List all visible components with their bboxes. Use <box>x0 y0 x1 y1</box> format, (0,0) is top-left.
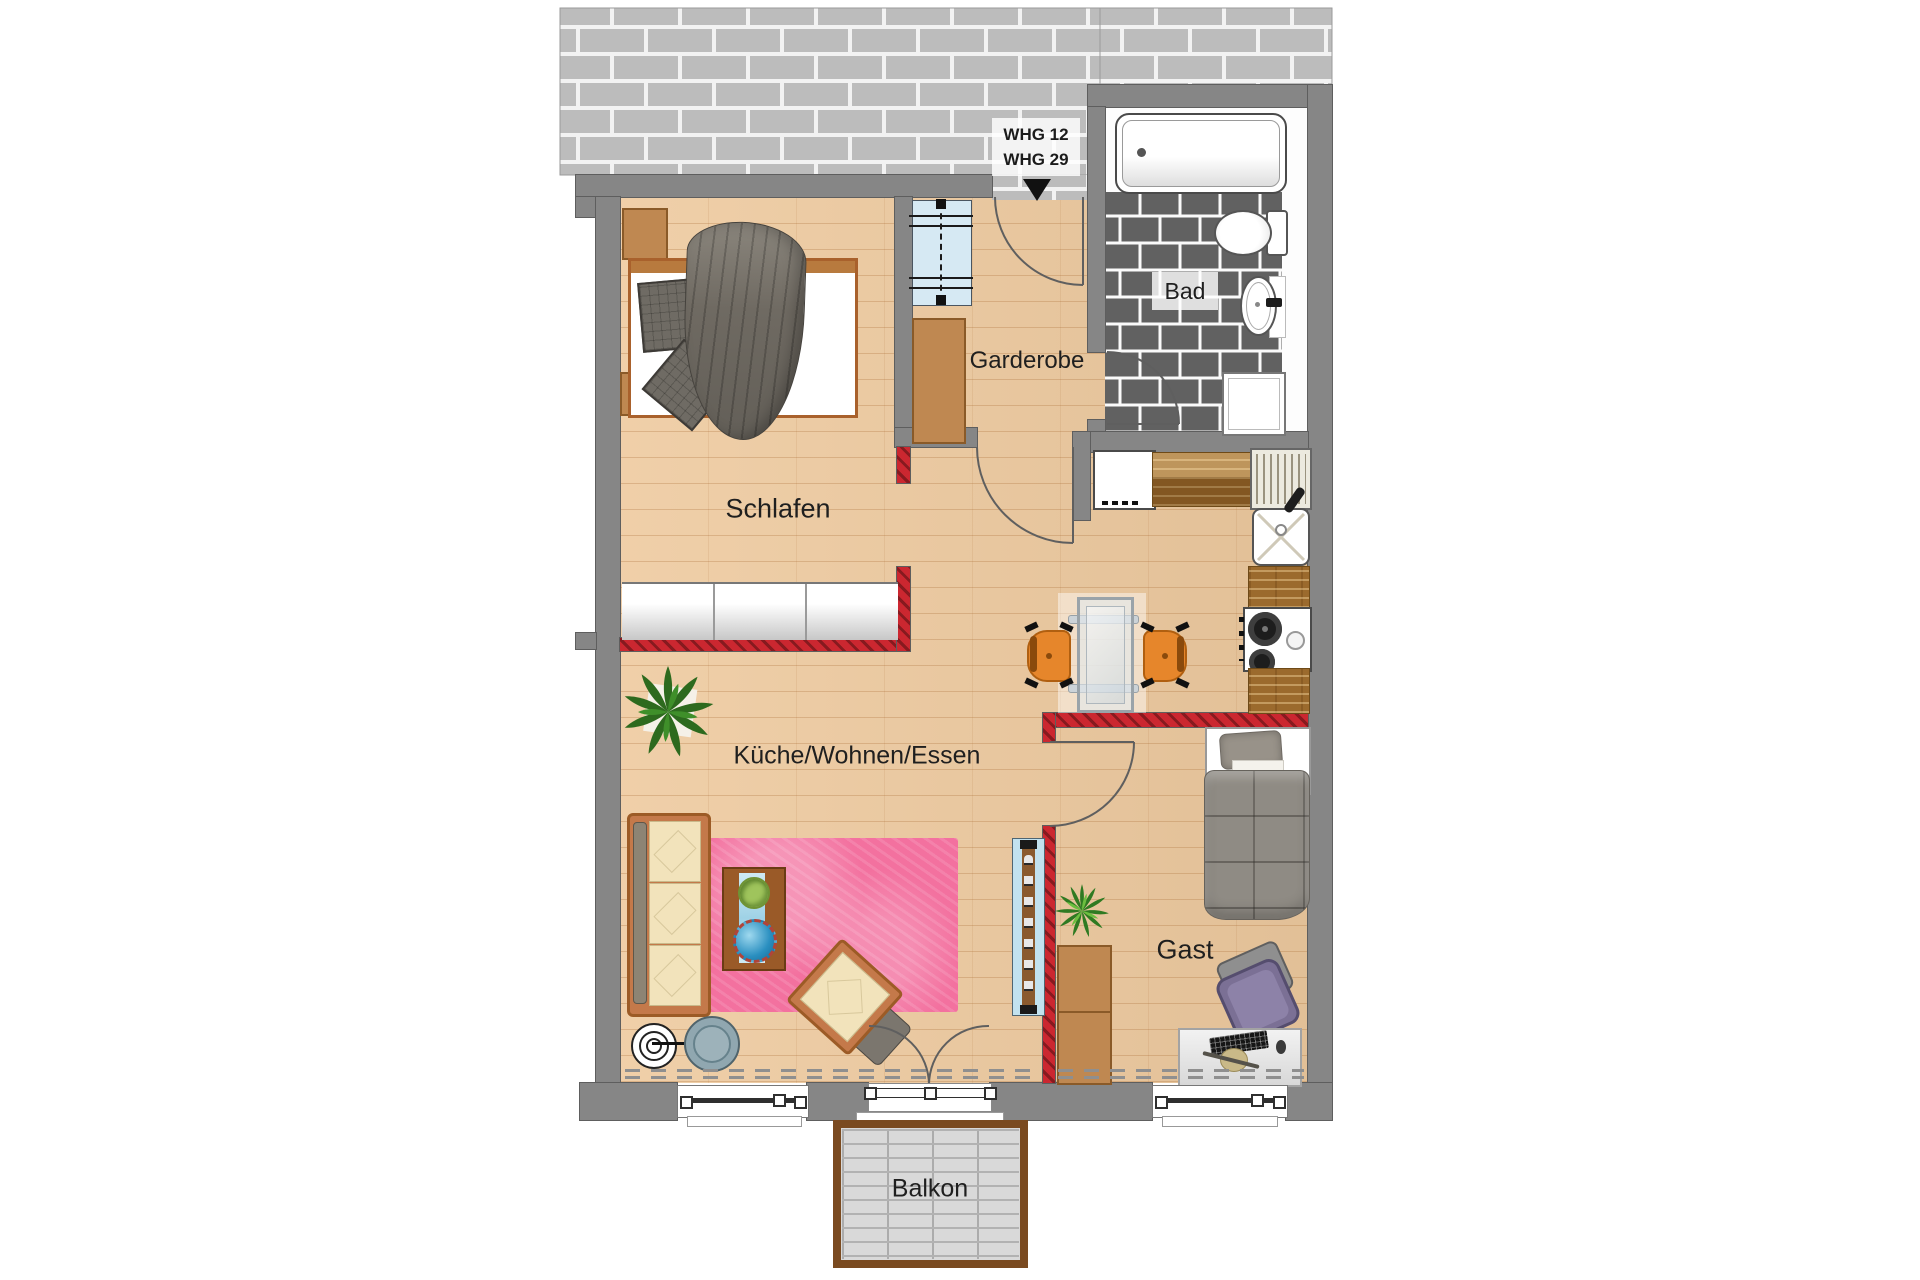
bedroom-label: Schlafen <box>725 494 830 525</box>
kitchen-wall-stub <box>1073 432 1090 520</box>
chair-dot <box>1162 653 1168 659</box>
dining-chair-right <box>1143 630 1187 682</box>
table-blue-sphere-icon <box>733 919 777 963</box>
heating-line <box>1058 1069 1304 1072</box>
stove-knobs <box>1239 617 1244 661</box>
window-guest <box>1152 1085 1288 1118</box>
bathtub-drain <box>1137 148 1146 157</box>
stove <box>1243 607 1312 672</box>
guest-wardrobe <box>1057 945 1112 1085</box>
balcony-door-leaf-left <box>870 1088 928 1098</box>
balcony-label: Balkon <box>892 1175 968 1204</box>
basin-cross-lines <box>1254 510 1308 564</box>
bedroom-nightstand <box>622 208 668 260</box>
bottom-wall-pier-left <box>580 1083 677 1120</box>
wall-top-left-step <box>576 197 598 217</box>
hall-tall-cabinet <box>912 200 972 306</box>
cabinet-center-rail <box>940 203 942 301</box>
fridge <box>1093 450 1156 510</box>
wall-right <box>1308 85 1332 1083</box>
side-table-inner <box>693 1025 731 1063</box>
red-wall-bedroom-vertical <box>897 567 910 651</box>
sideboard-panel <box>807 584 898 640</box>
sink-drain-dot <box>1255 302 1260 307</box>
balcony-door-leaf-right <box>932 1088 990 1098</box>
shower-tray-inner <box>1228 378 1280 430</box>
sink-faucet-icon <box>1266 298 1282 307</box>
kitchen-counter-right-1 <box>1248 566 1310 609</box>
cabinet-knob-bottom <box>936 295 946 305</box>
hall-label: Garderobe <box>970 347 1085 375</box>
kitchen-counter-right-2 <box>1248 668 1310 714</box>
cabinet-knob-top <box>936 199 946 209</box>
entrance-arrow-icon <box>1023 179 1051 201</box>
bathtub <box>1115 113 1287 194</box>
sofa <box>627 813 711 1017</box>
guest-duvet <box>1204 770 1310 920</box>
shelf-cap-bottom <box>1020 1005 1037 1014</box>
window-end-square <box>1155 1096 1168 1109</box>
dining-chair-left <box>1027 630 1071 682</box>
sink-drainboard <box>1250 448 1312 510</box>
wall-top <box>576 175 992 197</box>
red-wall-guest-stub <box>1043 713 1055 742</box>
window-sill-living <box>687 1116 802 1127</box>
window-end-square <box>1273 1096 1286 1109</box>
floor-plan: Bad <box>0 0 1920 1280</box>
unit-label-line1: WHG 12 <box>992 122 1080 147</box>
heating-line <box>625 1076 1040 1079</box>
chair-back <box>1030 636 1037 672</box>
hall-wardrobe <box>912 318 966 444</box>
living-label: Küche/Wohnen/Essen <box>734 742 981 771</box>
burner-center <box>1262 626 1268 632</box>
stairwell-brick-right <box>1100 8 1332 85</box>
unit-label-box: WHG 12 WHG 29 <box>992 118 1080 176</box>
lamp-ring <box>639 1031 669 1061</box>
sofa-cushion <box>649 883 701 944</box>
table-plant-bowl-icon <box>738 877 770 909</box>
chair-back <box>1177 636 1184 672</box>
balcony-door-hinge-left <box>864 1087 877 1100</box>
cushion-stitch <box>827 979 863 1015</box>
coffee-table <box>722 867 786 971</box>
window-handle-square <box>773 1094 786 1107</box>
sideboard-panel <box>622 584 715 640</box>
bedroom-sideboard <box>622 582 898 640</box>
heating-line <box>625 1069 1040 1072</box>
unit-label-line2: WHG 29 <box>992 147 1080 172</box>
office-chair-seat <box>1225 967 1292 1035</box>
floor-lamp-icon <box>631 1023 677 1069</box>
stove-burner-large <box>1248 612 1282 646</box>
window-sill-guest <box>1162 1116 1278 1127</box>
wardrobe-door-line <box>1059 1011 1110 1013</box>
bottom-wall-pier-3 <box>990 1083 1152 1120</box>
dining-table <box>1077 597 1134 713</box>
window-end-square <box>794 1096 807 1109</box>
window-handle-square <box>1251 1094 1264 1107</box>
toilet-bowl <box>1214 210 1272 256</box>
kitchen-sink-basin <box>1252 508 1310 566</box>
sideboard-panel <box>715 584 808 640</box>
balcony-door-hinge-right <box>984 1087 997 1100</box>
sofa-cushion <box>649 945 701 1006</box>
red-wall-bedroom-stub <box>897 447 910 483</box>
bathroom-label-box: Bad <box>1152 272 1218 310</box>
balcony-door-hinge-center <box>924 1087 937 1100</box>
bedroom-hall-divider-wall <box>895 197 912 447</box>
cushion-stitch <box>653 830 696 873</box>
mouse-icon <box>1276 1040 1286 1054</box>
kitchen-counter-top <box>1152 452 1252 507</box>
wall-left-pier <box>576 633 596 649</box>
chair-dot <box>1046 653 1052 659</box>
cushion-stitch <box>653 892 696 935</box>
shelf-cap-top <box>1020 840 1037 849</box>
bath-left-wall <box>1088 107 1105 352</box>
window-end-square <box>680 1096 693 1109</box>
table-glass-inner <box>1086 606 1125 704</box>
bathroom-label: Bad <box>1165 278 1206 305</box>
side-table-round <box>684 1016 740 1072</box>
guest-label: Gast <box>1156 935 1213 966</box>
shelf-knobs <box>1024 855 1033 999</box>
heating-line <box>1058 1076 1304 1079</box>
bath-top-wall <box>1088 85 1332 107</box>
stove-corner-knob <box>1286 631 1305 650</box>
window-living <box>677 1085 809 1118</box>
fridge-handle <box>1102 501 1142 505</box>
red-wall-guest-horizontal <box>1043 713 1308 727</box>
sofa-back <box>633 822 647 1004</box>
cushion-stitch <box>653 954 696 997</box>
shower-tray <box>1222 372 1286 436</box>
sofa-cushion <box>649 821 701 882</box>
wall-left <box>596 197 620 1083</box>
lamp-ring-inner <box>646 1038 662 1054</box>
bottom-wall-pier-right <box>1286 1083 1332 1120</box>
wall-shelf-unit <box>1012 838 1045 1016</box>
